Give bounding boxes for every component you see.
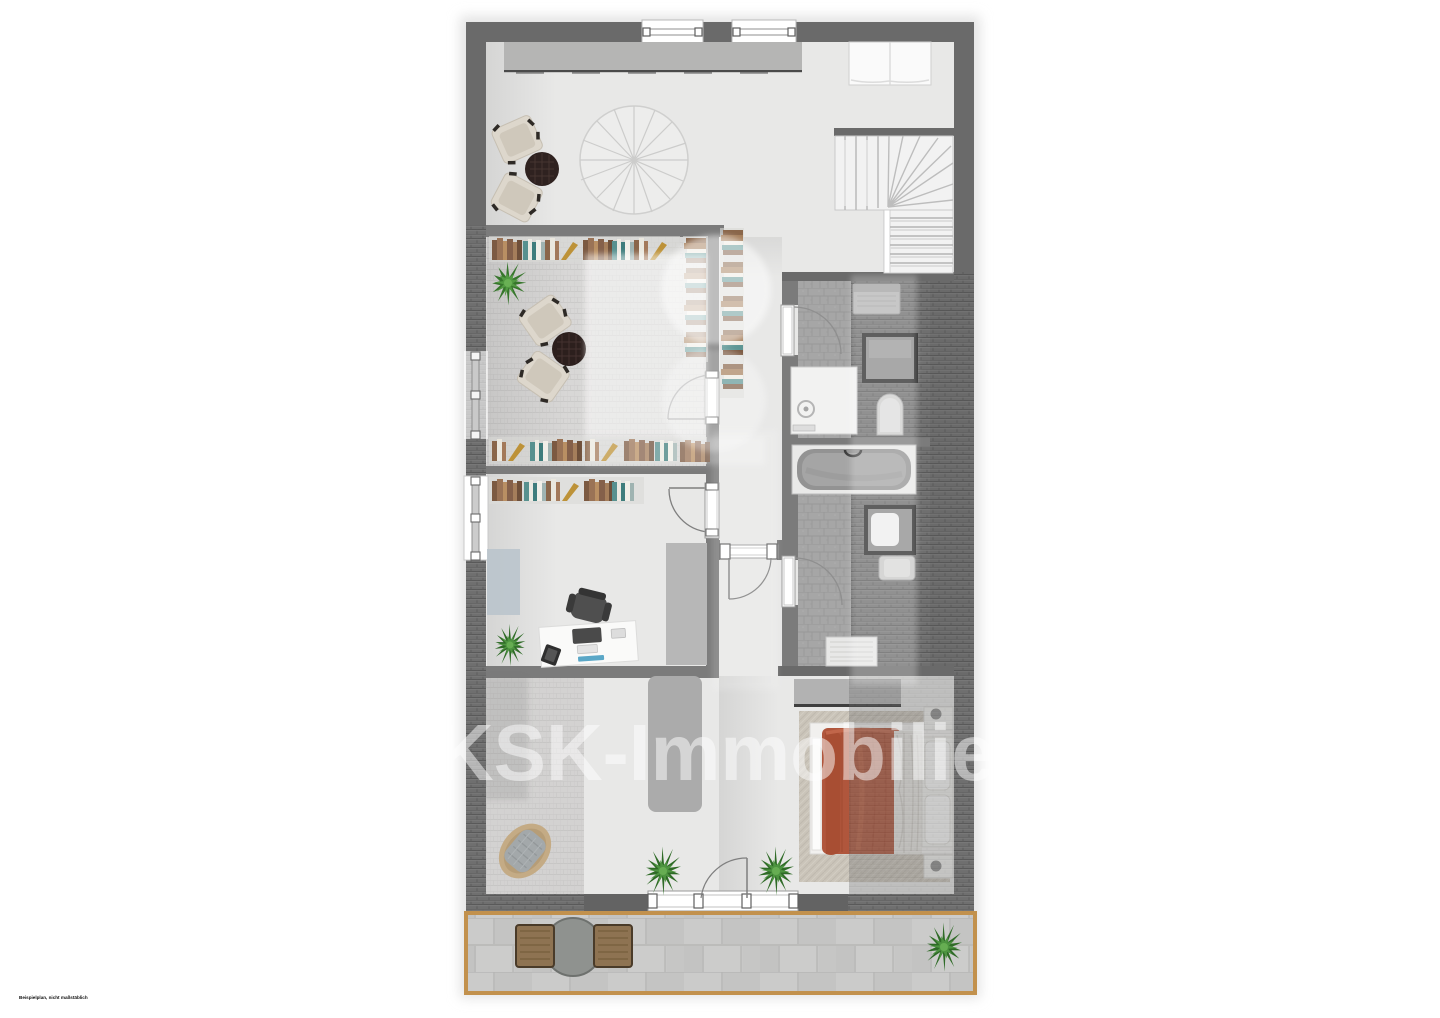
svg-text:KSK-Immobilie: KSK-Immobilie <box>437 708 995 797</box>
svg-text:Beispielplan, nicht maßstäblic: Beispielplan, nicht maßstäblich <box>19 995 88 1000</box>
